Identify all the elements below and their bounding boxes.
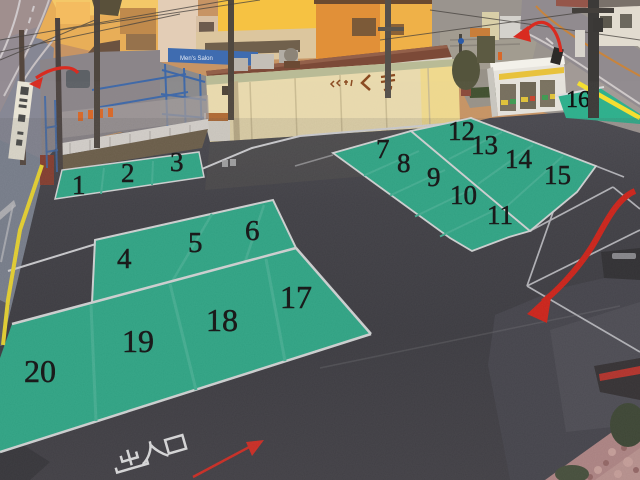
svg-text:16: 16 (566, 87, 590, 113)
svg-text:Men's Salon: Men's Salon (180, 56, 213, 62)
